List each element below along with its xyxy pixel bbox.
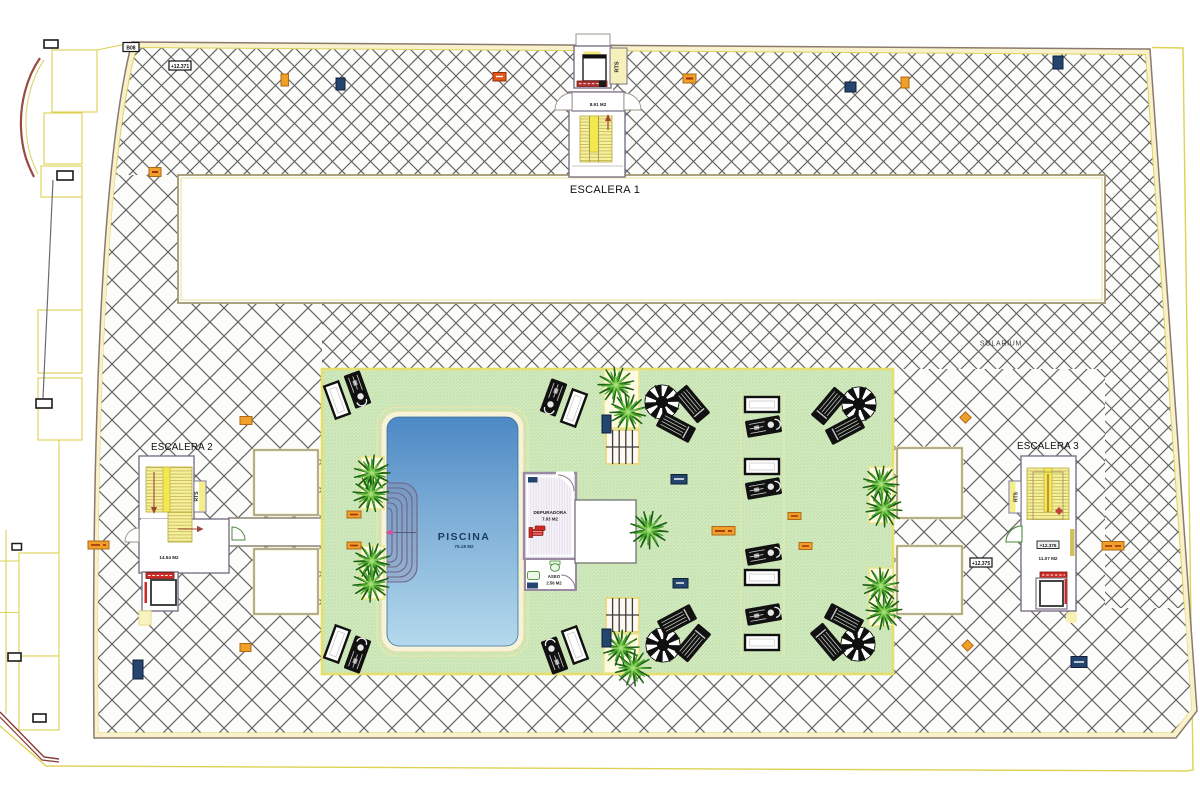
svg-text:ESCALERA 3: ESCALERA 3 — [1017, 441, 1079, 452]
svg-text:+12.375: +12.375 — [1040, 543, 1057, 548]
svg-text:7.03 M2: 7.03 M2 — [542, 517, 558, 522]
svg-text:B08: B08 — [126, 46, 135, 52]
svg-text:RTS: RTS — [1014, 491, 1020, 502]
svg-text:2.56 M2: 2.56 M2 — [546, 581, 562, 586]
svg-text:RTS: RTS — [615, 61, 621, 72]
svg-text:DEPURADORA: DEPURADORA — [534, 510, 568, 515]
svg-text:14.54 M2: 14.54 M2 — [159, 555, 179, 560]
svg-text:11.07 M2: 11.07 M2 — [1039, 556, 1058, 561]
svg-text:RTS: RTS — [194, 491, 200, 502]
svg-text:ESCALERA 2: ESCALERA 2 — [151, 442, 213, 453]
svg-text:+12.371: +12.371 — [171, 64, 189, 70]
svg-text:ASEO: ASEO — [548, 574, 561, 579]
svg-text:76.18 M2: 76.18 M2 — [454, 544, 474, 549]
svg-text:SOLARIUM: SOLARIUM — [980, 341, 1022, 348]
svg-text:ESCALERA 1: ESCALERA 1 — [570, 184, 640, 196]
svg-text:+12.375: +12.375 — [972, 561, 990, 567]
svg-text:PISCINA: PISCINA — [438, 531, 490, 543]
svg-text:8.91 M2: 8.91 M2 — [590, 102, 607, 107]
